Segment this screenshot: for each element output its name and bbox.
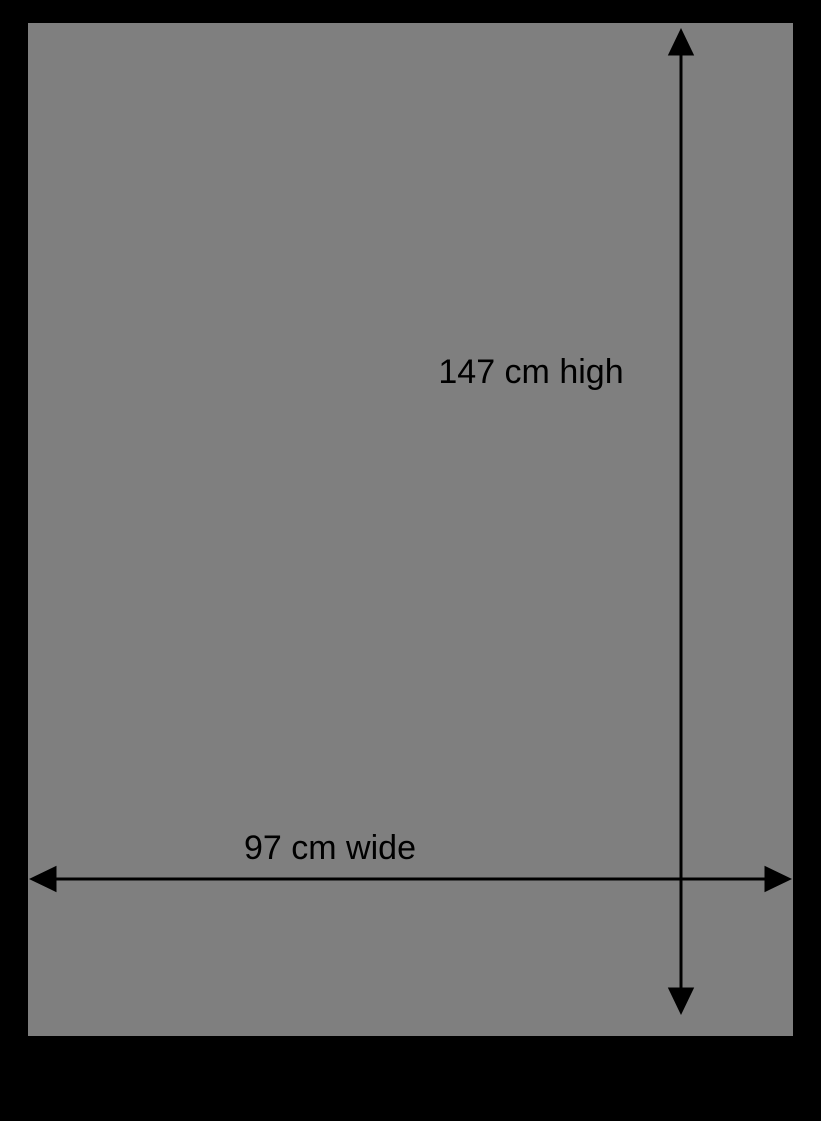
svg-text:97 cm wide: 97 cm wide xyxy=(244,829,416,867)
svg-text:147 cm high: 147 cm high xyxy=(438,353,623,391)
